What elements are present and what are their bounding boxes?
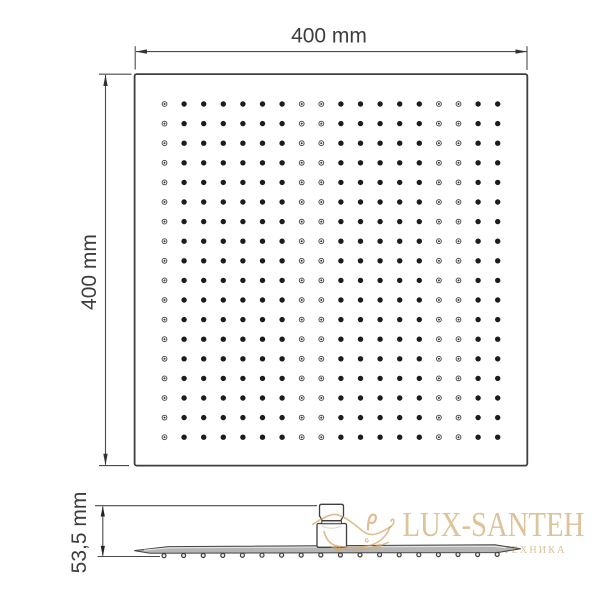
svg-text:400 mm: 400 mm [291,25,367,48]
svg-text:53,5 mm: 53,5 mm [68,492,91,574]
svg-text:400 mm: 400 mm [78,234,101,310]
svg-text:LUX-SANTEH: LUX-SANTEH [403,504,585,543]
